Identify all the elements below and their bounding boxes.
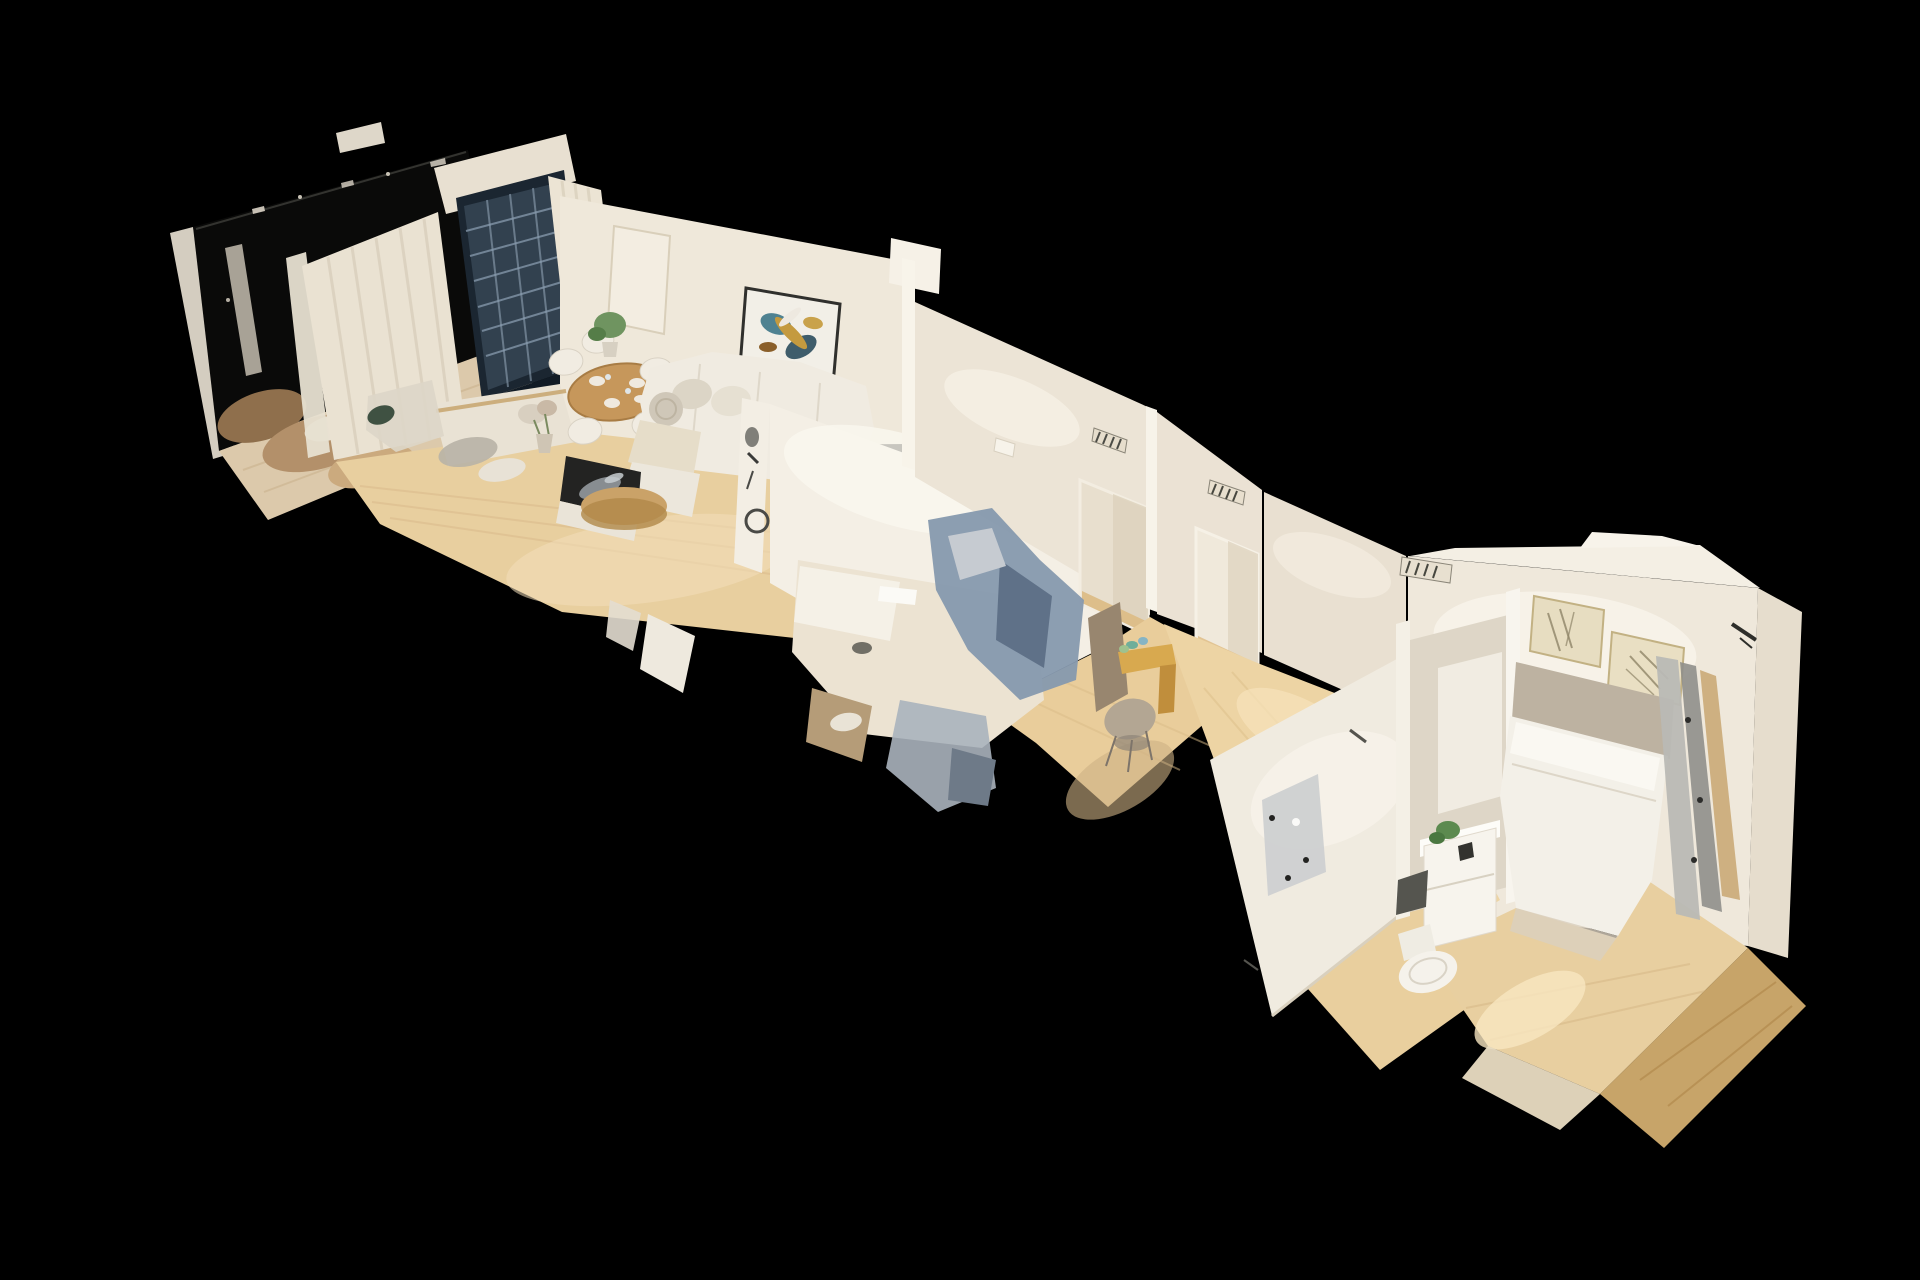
painting-blob-brown bbox=[759, 342, 777, 352]
apartment-3d-model bbox=[0, 0, 1920, 1280]
dining-plate-2 bbox=[629, 378, 645, 388]
wall-step-strip-1 bbox=[902, 258, 915, 470]
dining-plant-foliage-2 bbox=[588, 327, 606, 341]
dining-plant-pot bbox=[602, 342, 618, 357]
dining-glass-1 bbox=[605, 374, 611, 380]
sink-plant-2 bbox=[1429, 832, 1445, 844]
media-wall-dot-2 bbox=[386, 172, 390, 176]
mirror-fleck-4 bbox=[1292, 818, 1300, 826]
media-wall-dot-3 bbox=[226, 298, 230, 302]
desk-side bbox=[1158, 664, 1176, 714]
media-wall-dot-1 bbox=[298, 195, 302, 199]
streak-fleck-1 bbox=[1685, 717, 1691, 723]
coffee-table-face bbox=[581, 498, 667, 530]
bathroom-doorframe-left bbox=[1396, 620, 1410, 920]
dining-plate-3 bbox=[604, 398, 620, 408]
desk-item-3 bbox=[1119, 645, 1129, 653]
shower-dark-blob bbox=[745, 427, 759, 447]
kitchen-flower-2 bbox=[537, 400, 557, 416]
desk-item-2 bbox=[1138, 637, 1148, 645]
dining-plate-1 bbox=[589, 376, 605, 386]
mirror-fleck-3 bbox=[1285, 875, 1291, 881]
mirror-fleck-1 bbox=[1269, 815, 1275, 821]
streak-fleck-2 bbox=[1697, 797, 1703, 803]
streak-fleck-3 bbox=[1691, 857, 1697, 863]
mirror-fleck-2 bbox=[1303, 857, 1309, 863]
bathroom-lit-panel bbox=[1438, 652, 1502, 814]
dollhouse-viewport[interactable] bbox=[0, 0, 1920, 1280]
wall-step-strip-2 bbox=[1146, 406, 1157, 612]
dining-glass-2 bbox=[625, 388, 631, 394]
bed1-dark-spot bbox=[852, 642, 872, 654]
sofa-round-pillow bbox=[649, 392, 683, 426]
